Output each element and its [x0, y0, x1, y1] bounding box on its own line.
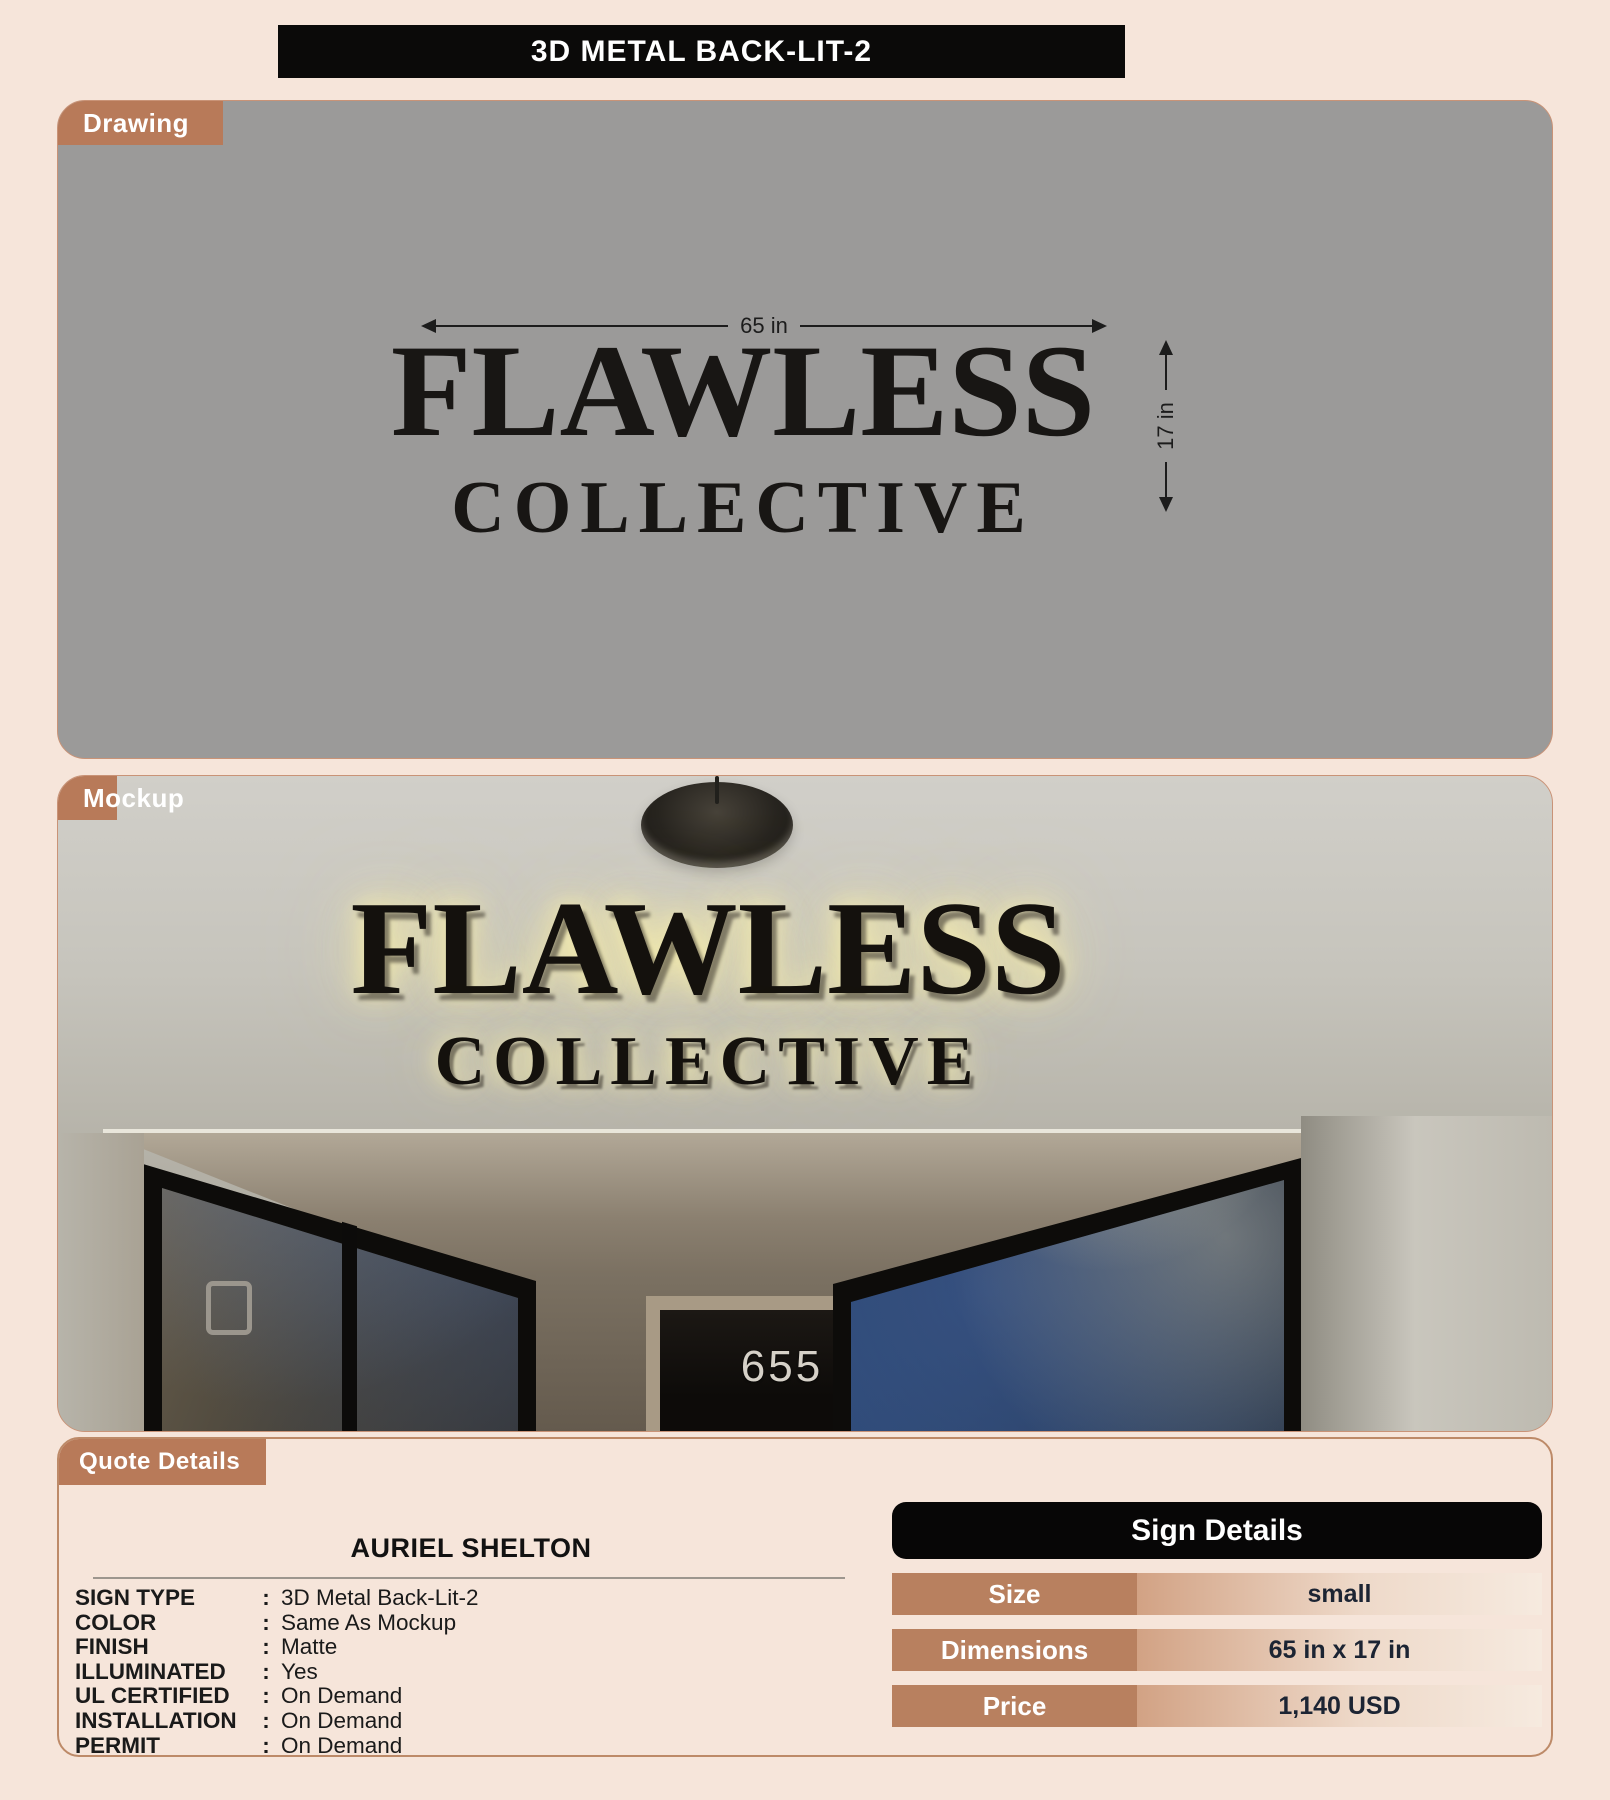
mockup-tab-label: Mockup: [83, 783, 184, 814]
sign-details-row: Price 1,140 USD: [892, 1685, 1542, 1727]
mockup-panel: 655 FLAWLESS COLLECTIVE Mockup: [57, 775, 1553, 1432]
quote-row: INSTALLATION : On Demand: [75, 1709, 479, 1734]
quote-row-value: Same As Mockup: [281, 1611, 456, 1636]
mockup-backlit-sign: FLAWLESS COLLECTIVE: [58, 881, 1358, 1097]
quote-row-label: COLOR: [75, 1611, 251, 1636]
drawing-sign-line2: COLLECTIVE: [58, 471, 1428, 545]
drawing-panel: Drawing 65 in 17 in FLAWLESS COLLECTIVE: [57, 100, 1553, 759]
sign-details-row-value: small: [1137, 1573, 1542, 1615]
right-wall: [1301, 1116, 1553, 1432]
left-wall: [58, 1133, 144, 1432]
quote-row-value: Matte: [281, 1635, 337, 1660]
drawing-tab: Drawing: [58, 101, 223, 145]
sign-details-table: Sign Details Size small Dimensions 65 in…: [892, 1502, 1542, 1727]
quote-row-value: 3D Metal Back-Lit-2: [281, 1586, 479, 1611]
drawing-sign-line1: FLAWLESS: [58, 325, 1428, 457]
quote-row: PERMIT : On Demand: [75, 1734, 479, 1759]
quote-row-value: On Demand: [281, 1684, 402, 1709]
quote-row-label: FINISH: [75, 1635, 251, 1660]
quote-row-label: INSTALLATION: [75, 1709, 251, 1734]
quote-details-tab: Quote Details: [59, 1439, 266, 1485]
quote-row: COLOR : Same As Mockup: [75, 1611, 479, 1636]
page-title: 3D METAL BACK-LIT-2: [531, 35, 872, 69]
sign-details-row: Size small: [892, 1573, 1542, 1615]
page-title-bar: 3D METAL BACK-LIT-2: [278, 25, 1125, 78]
mockup-sign-line2: COLLECTIVE: [58, 1027, 1358, 1097]
quote-rows: SIGN TYPE : 3D Metal Back-Lit-2 COLOR : …: [75, 1586, 479, 1758]
mockup-sign-line1: FLAWLESS: [58, 881, 1358, 1015]
quote-row: FINISH : Matte: [75, 1635, 479, 1660]
window-handle: [206, 1281, 252, 1335]
sign-details-row-label: Size: [892, 1573, 1137, 1615]
quote-row: ILLUMINATED : Yes: [75, 1660, 479, 1685]
sign-details-title: Sign Details: [1131, 1514, 1303, 1548]
sign-details-row-label: Price: [892, 1685, 1137, 1727]
quote-row-value: On Demand: [281, 1734, 402, 1759]
mockup-tab: Mockup: [58, 776, 117, 820]
sign-details-row-value: 65 in x 17 in: [1137, 1629, 1542, 1671]
quote-row-label: PERMIT: [75, 1734, 251, 1759]
quote-details-tab-label: Quote Details: [79, 1448, 240, 1476]
sign-details-header: Sign Details: [892, 1502, 1542, 1559]
storefront-soffit-edge: [103, 1129, 1453, 1133]
quote-row: SIGN TYPE : 3D Metal Back-Lit-2: [75, 1586, 479, 1611]
sign-details-row-value: 1,140 USD: [1137, 1685, 1542, 1727]
ceiling-lamp-pin: [715, 776, 719, 804]
quote-row-value: On Demand: [281, 1709, 402, 1734]
sign-details-row: Dimensions 65 in x 17 in: [892, 1629, 1542, 1671]
quote-row-value: Yes: [281, 1660, 318, 1685]
drawing-sign-artwork: FLAWLESS COLLECTIVE: [58, 325, 1428, 545]
quote-row-label: SIGN TYPE: [75, 1586, 251, 1611]
left-window-divider: [342, 1222, 357, 1432]
customer-name: AURIEL SHELTON: [89, 1533, 853, 1564]
quote-row-label: UL CERTIFIED: [75, 1684, 251, 1709]
drawing-tab-label: Drawing: [83, 108, 189, 139]
quote-details-panel: Quote Details AURIEL SHELTON SIGN TYPE :…: [57, 1437, 1553, 1757]
door-number: 655: [741, 1342, 823, 1432]
customer-divider: [93, 1577, 845, 1579]
quote-row: UL CERTIFIED : On Demand: [75, 1684, 479, 1709]
quote-row-label: ILLUMINATED: [75, 1660, 251, 1685]
sign-details-row-label: Dimensions: [892, 1629, 1137, 1671]
